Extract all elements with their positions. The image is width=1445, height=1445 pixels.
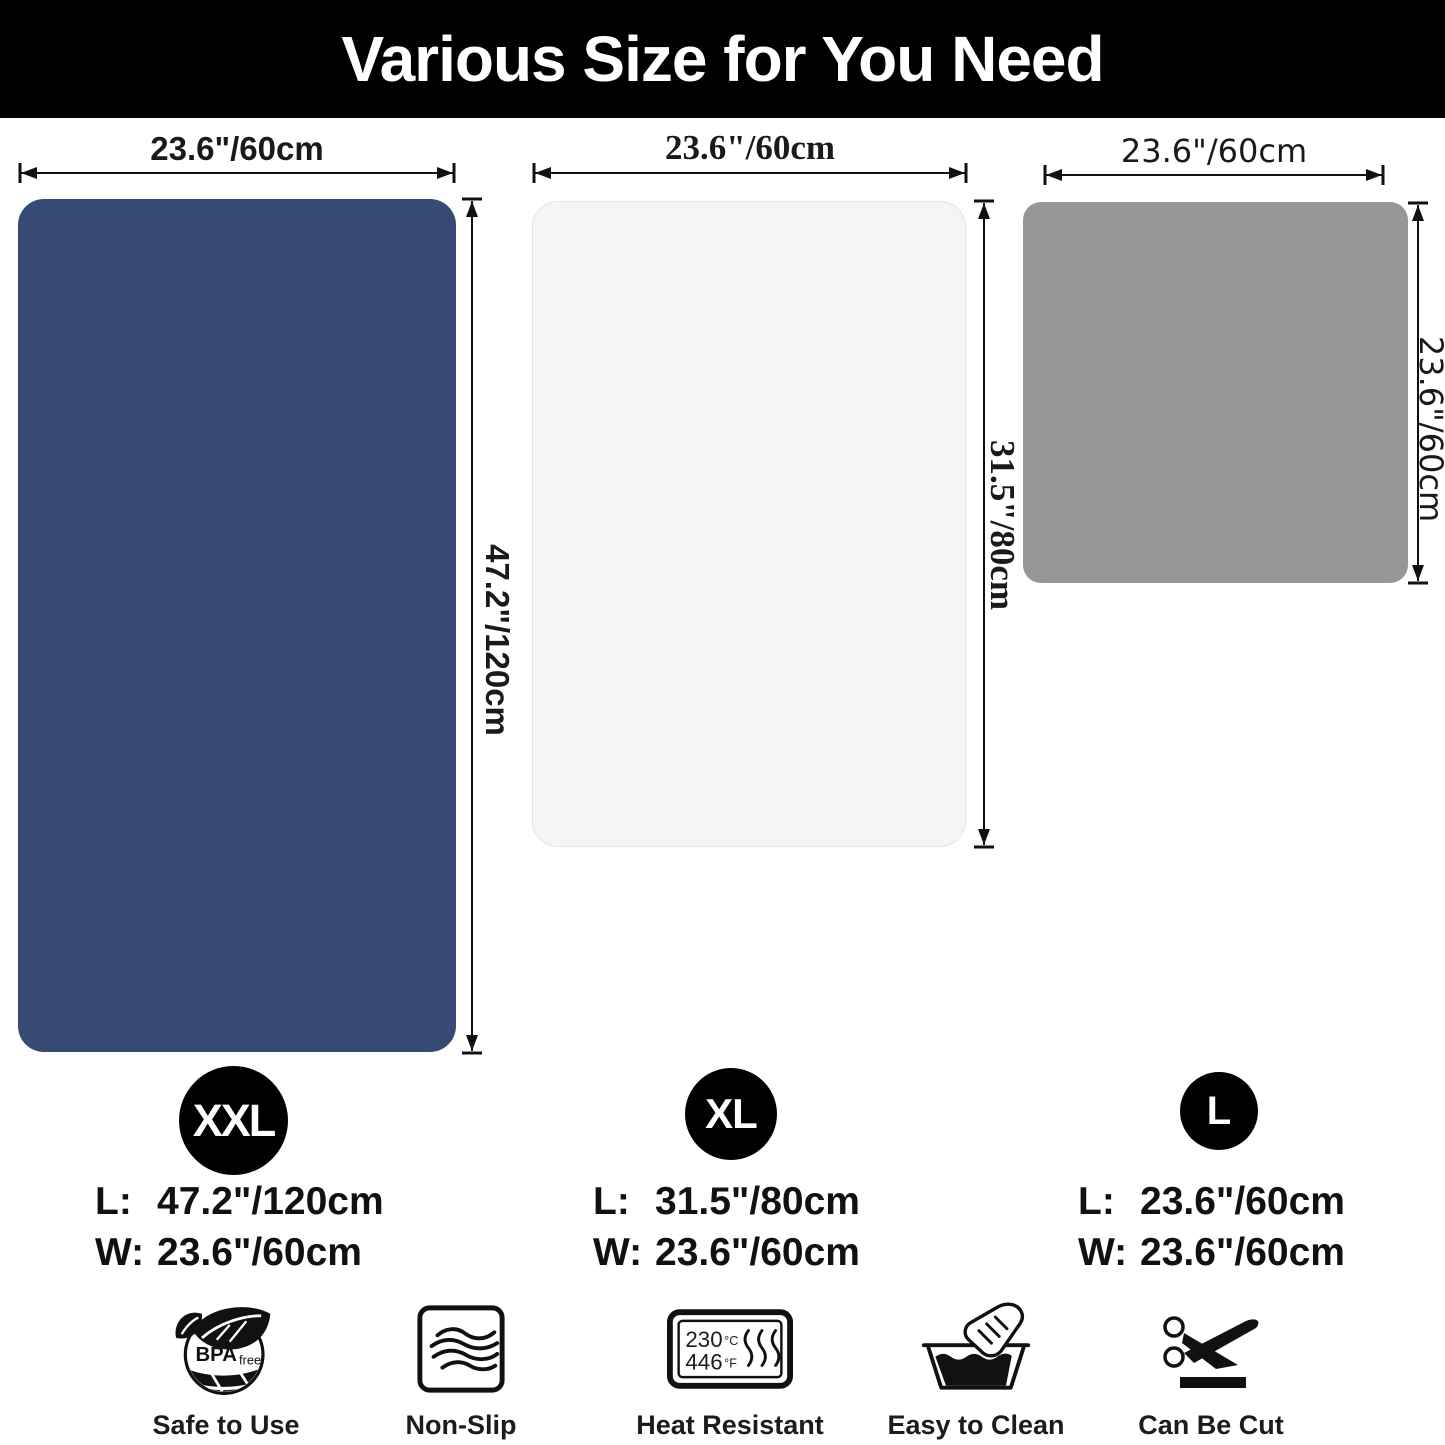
feature-label: Non-Slip	[406, 1410, 517, 1441]
xl-width-arrow	[532, 161, 968, 185]
xl-height-label: 31.5"/80cm	[982, 440, 1022, 610]
feature-label: Heat Resistant	[636, 1410, 824, 1441]
bpa-icon-text: BPA	[196, 1344, 238, 1366]
easy-to-clean-icon	[918, 1294, 1034, 1404]
l-height-label: 23.6"/60cm	[1412, 336, 1445, 522]
mat-xxl	[18, 199, 456, 1052]
bpa-free-icon: BPA free	[165, 1294, 287, 1404]
heat-resistant-icon: 230 °C 446 °F	[667, 1294, 793, 1404]
width-label: W:	[1078, 1231, 1140, 1275]
length-label: L:	[593, 1180, 655, 1224]
feature-label: Can Be Cut	[1138, 1410, 1284, 1441]
page-title: Various Size for You Need	[341, 22, 1103, 96]
xxl-height-label: 47.2"/120cm	[478, 544, 516, 736]
celsius-value: 230	[685, 1327, 722, 1352]
celsius-unit: °C	[724, 1334, 738, 1348]
mat-l	[1023, 202, 1408, 583]
header-banner: Various Size for You Need	[0, 0, 1445, 118]
size-badge-xl: XL	[685, 1068, 777, 1160]
size-infographic: Various Size for You Need 23.6"/60cm 47.…	[0, 0, 1445, 1445]
xxl-length-row: L: 47.2"/120cm	[95, 1180, 384, 1224]
size-badge-xl-text: XL	[705, 1090, 757, 1138]
fahrenheit-value: 446	[685, 1349, 722, 1374]
length-value: 23.6"/60cm	[1140, 1180, 1345, 1224]
size-badge-l-text: L	[1207, 1089, 1231, 1134]
length-value: 31.5"/80cm	[655, 1180, 860, 1224]
xxl-width-arrow	[18, 161, 456, 185]
feature-safe-to-use: BPA free Safe to Use	[111, 1294, 341, 1441]
bpa-icon-subtext: free	[239, 1353, 261, 1368]
length-label: L:	[1078, 1180, 1140, 1224]
size-badge-l: L	[1180, 1072, 1258, 1150]
width-value: 23.6"/60cm	[655, 1231, 860, 1275]
length-label: L:	[95, 1180, 157, 1224]
width-label: W:	[593, 1231, 655, 1275]
size-badge-xxl: XXL	[179, 1066, 288, 1175]
length-value: 47.2"/120cm	[157, 1180, 384, 1224]
width-label: W:	[95, 1231, 157, 1275]
width-value: 23.6"/60cm	[1140, 1231, 1345, 1275]
l-width-arrow	[1043, 163, 1385, 187]
width-value: 23.6"/60cm	[157, 1231, 362, 1275]
feature-easy-to-clean: Easy to Clean	[861, 1294, 1091, 1441]
l-length-row: L: 23.6"/60cm	[1078, 1180, 1345, 1224]
mat-xl	[532, 201, 966, 847]
can-be-cut-icon	[1154, 1294, 1268, 1404]
size-badge-xxl-text: XXL	[193, 1095, 275, 1147]
l-width-row: W: 23.6"/60cm	[1078, 1231, 1345, 1275]
xl-width-row: W: 23.6"/60cm	[593, 1231, 860, 1275]
feature-can-be-cut: Can Be Cut	[1096, 1294, 1326, 1441]
fahrenheit-unit: °F	[724, 1356, 737, 1370]
feature-heat-resistant: 230 °C 446 °F Heat Resistant	[615, 1294, 845, 1441]
xxl-width-row: W: 23.6"/60cm	[95, 1231, 362, 1275]
feature-label: Easy to Clean	[887, 1410, 1064, 1441]
xl-length-row: L: 31.5"/80cm	[593, 1180, 860, 1224]
feature-non-slip: Non-Slip	[346, 1294, 576, 1441]
non-slip-icon	[414, 1294, 508, 1404]
feature-label: Safe to Use	[152, 1410, 299, 1441]
